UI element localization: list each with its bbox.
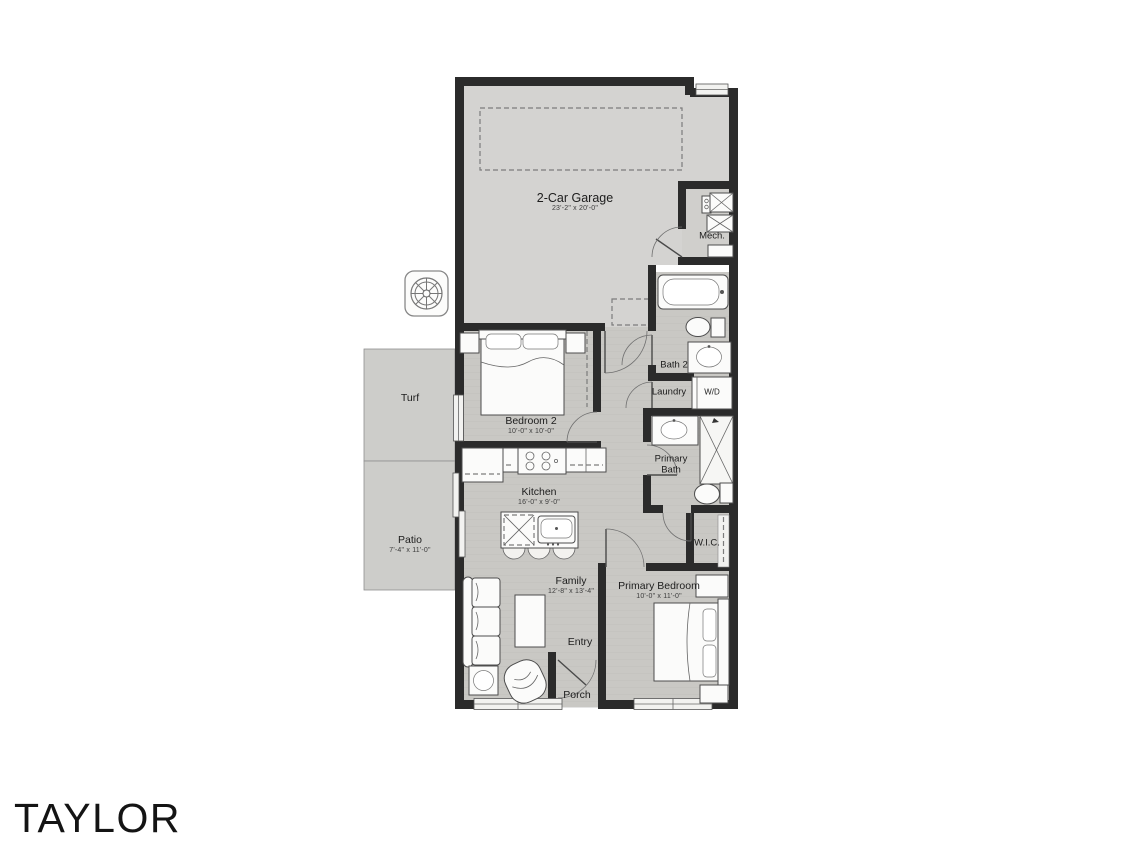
primary-vanity-icon: [652, 416, 698, 445]
bath2-toilet-icon: [686, 318, 725, 338]
fridge-icon: [462, 448, 503, 482]
compass-icon: [405, 271, 448, 316]
plan-title: TAYLOR: [14, 795, 181, 842]
primary-toilet-icon: [695, 483, 734, 504]
turf-window: [454, 395, 464, 441]
patio-area: [364, 461, 455, 590]
coffee-table-icon: [515, 595, 545, 647]
washer-dryer-icon: [692, 377, 732, 409]
floor-plan: 2-Car Garage23'-2" x 20'-0" Mech. Bath 2…: [360, 75, 740, 720]
bathtub-icon: [658, 275, 728, 309]
side-table-icon: [469, 666, 498, 695]
turf-area: [364, 349, 455, 461]
floorplan-drawing: [360, 75, 740, 720]
floorplan-page: 2-Car Garage23'-2" x 20'-0" Mech. Bath 2…: [0, 0, 1125, 844]
kitchen-island: [501, 512, 578, 559]
shower-icon: [700, 416, 733, 484]
garage-window: [696, 84, 728, 95]
sofa-icon: [463, 577, 500, 667]
closet-rod: [718, 515, 729, 567]
bath2-sink-icon: [688, 342, 731, 373]
stove-icon: [518, 448, 566, 474]
